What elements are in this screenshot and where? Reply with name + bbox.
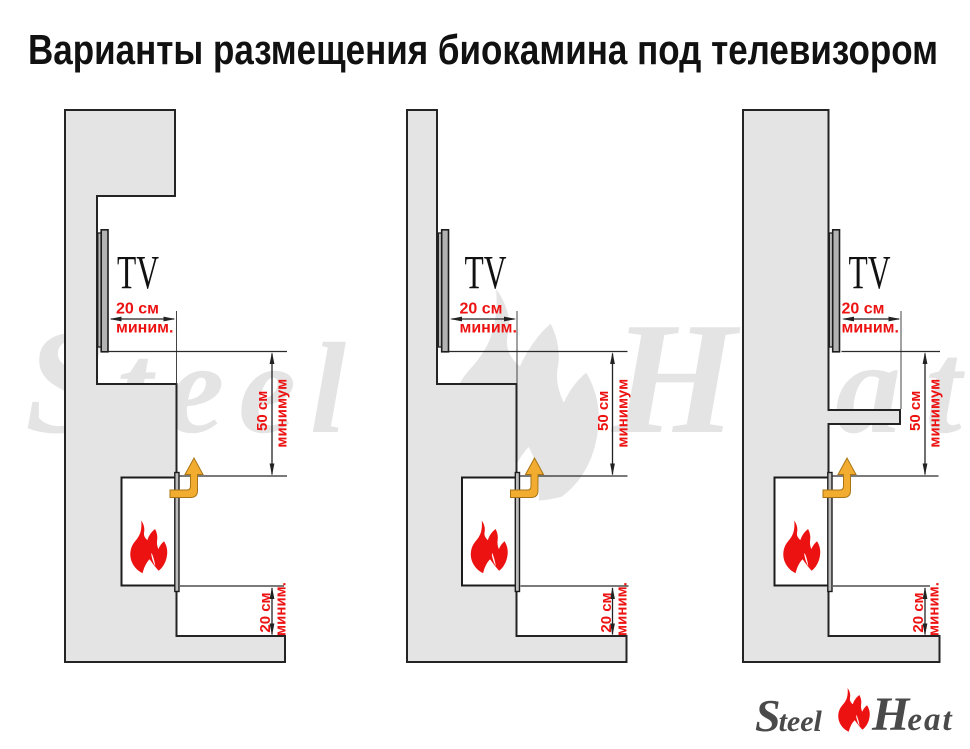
- svg-text:миним.: миним.: [272, 582, 289, 636]
- svg-text:минимум: минимум: [274, 379, 291, 448]
- svg-text:минимум: минимум: [927, 379, 944, 448]
- svg-text:TV: TV: [849, 247, 891, 300]
- svg-text:50 см: 50 см: [254, 391, 271, 431]
- svg-text:TV: TV: [465, 247, 507, 300]
- svg-text:миним.: миним.: [613, 582, 630, 636]
- svg-text:20 см: 20 см: [842, 301, 885, 318]
- svg-text:50 см: 50 см: [907, 391, 924, 431]
- svg-text:Варианты размещения биокамина: Варианты размещения биокамина под телеви…: [28, 26, 938, 73]
- svg-text:20 см: 20 см: [460, 301, 503, 318]
- svg-text:50 см: 50 см: [595, 391, 612, 431]
- svg-text:минимум: минимум: [615, 379, 632, 448]
- svg-text:20 см: 20 см: [116, 301, 159, 318]
- svg-text:TV: TV: [117, 247, 159, 300]
- svg-text:миним.: миним.: [116, 320, 173, 337]
- svg-text:миним.: миним.: [925, 582, 942, 636]
- svg-text:миним.: миним.: [460, 320, 517, 337]
- svg-text:миним.: миним.: [842, 320, 899, 337]
